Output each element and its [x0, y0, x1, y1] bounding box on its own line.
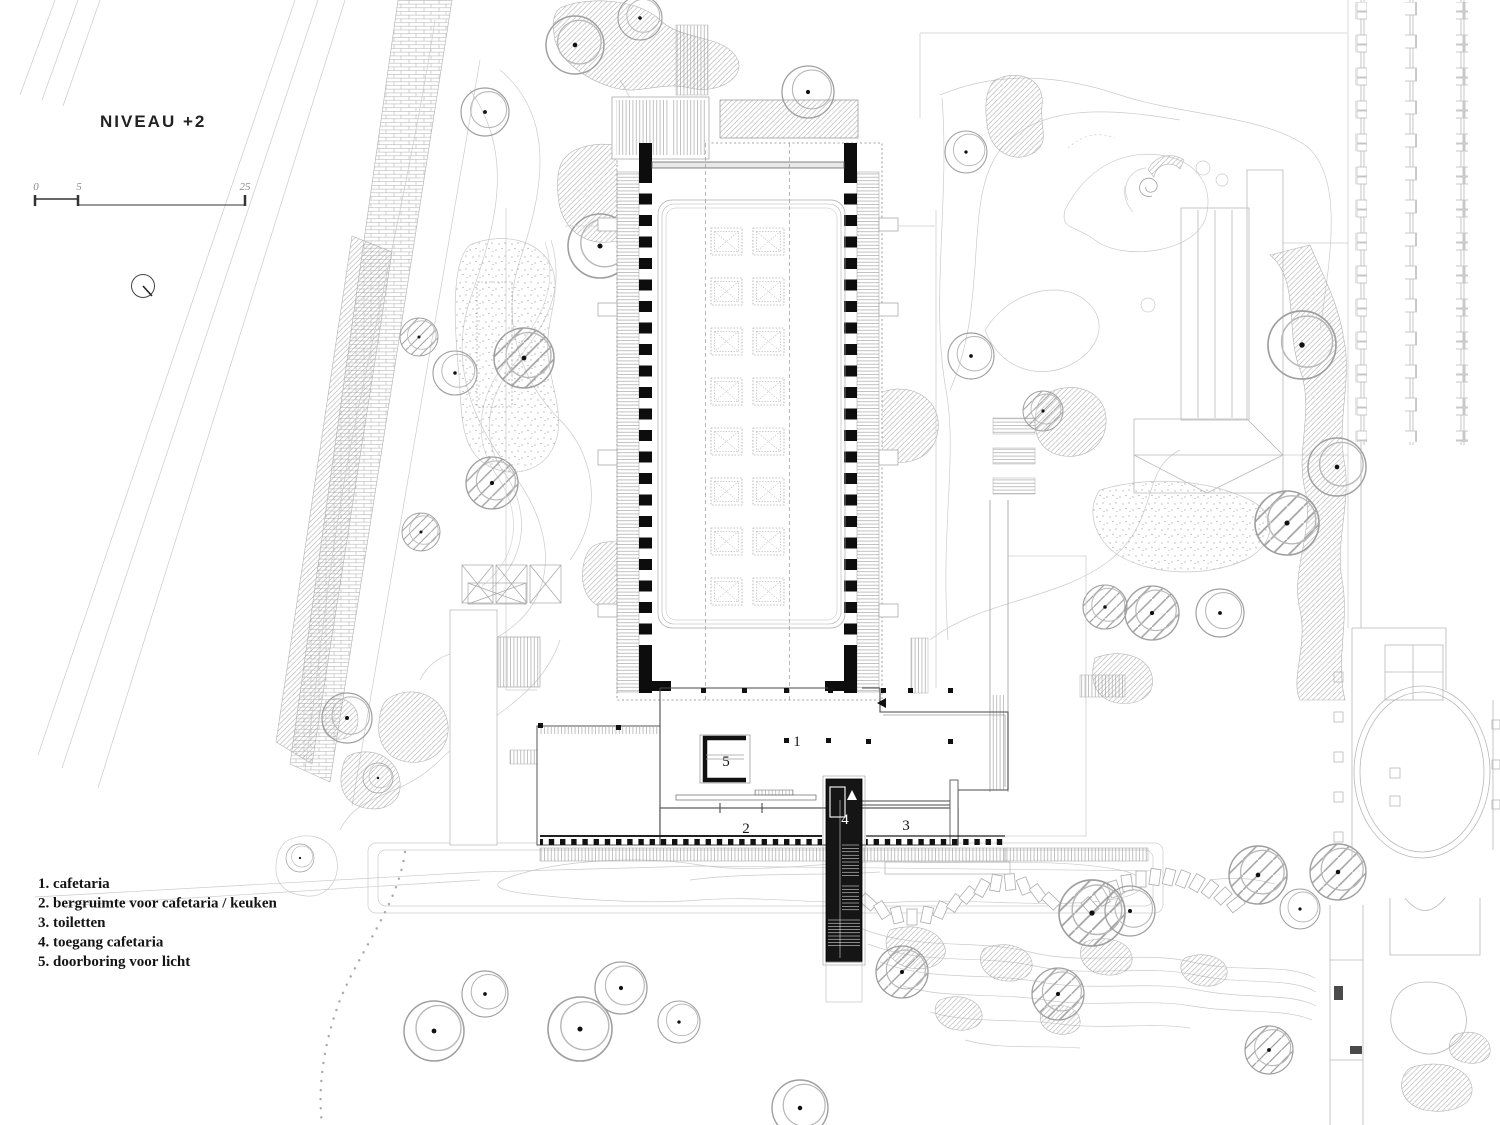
west-rooms-block [537, 726, 660, 845]
label-storage: 2 [742, 821, 750, 837]
colonnade [1355, 0, 1468, 628]
scale-label-25: 25 [240, 181, 252, 193]
east-garden-stair [1080, 675, 1125, 697]
north-arrow-icon [132, 275, 155, 298]
site-plan-drawing: NIVEAU +2 0 5 25 1. cafetaria 2. bergrui… [0, 0, 1500, 1125]
legend-item-4: 4. toegang cafetaria [38, 935, 164, 951]
west-column-wall [639, 178, 652, 648]
dotted-footpath [321, 852, 405, 1125]
legend-item-1: 1. cafetaria [38, 876, 110, 892]
label-toilets: 3 [902, 818, 910, 834]
garden-pavilion [1134, 170, 1283, 493]
service-boxes [462, 565, 561, 604]
west-louver-wall [617, 172, 639, 692]
architectural-plan-page: NIVEAU +2 0 5 25 1. cafetaria 2. bergrui… [0, 0, 1500, 1125]
entrance-corridor [823, 776, 865, 1002]
legend-item-3: 3. toiletten [38, 915, 106, 931]
legend-item-5: 5. doorboring voor licht [38, 954, 190, 970]
label-entrance: 4 [841, 812, 849, 828]
page-title: NIVEAU +2 [100, 112, 206, 131]
hall-roof-outline [617, 143, 882, 700]
spiral-mound [1125, 156, 1184, 212]
scale-label-0: 0 [33, 181, 39, 193]
terraced-garden [859, 868, 1490, 1111]
east-louver-wall [857, 172, 879, 692]
scale-label-5: 5 [76, 181, 82, 193]
label-light-opening: 5 [722, 754, 730, 770]
scale-bar: 0 5 25 [33, 181, 251, 206]
podium-level [537, 688, 1148, 1002]
roof-planter [720, 100, 858, 138]
bench [755, 790, 793, 795]
seat-row-west [859, 874, 1061, 925]
east-column-wall [844, 178, 857, 648]
legend-item-2: 2. bergruimte voor cafetaria / keuken [38, 896, 278, 912]
label-cafetaria: 1 [793, 734, 801, 750]
west-stair [498, 637, 540, 687]
